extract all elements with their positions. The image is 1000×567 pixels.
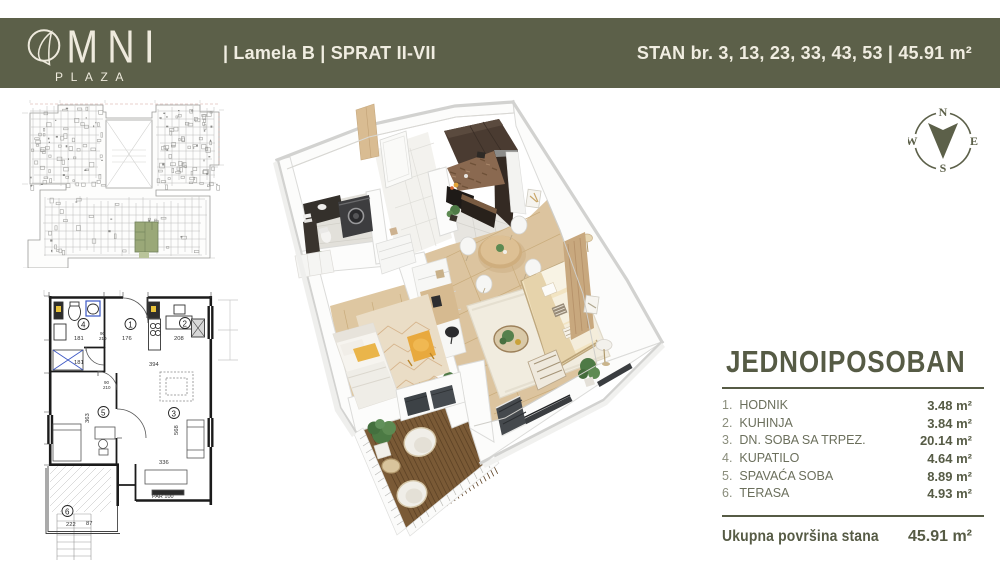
svg-text:1: 1 [128,320,133,329]
svg-text:87: 87 [86,521,92,527]
svg-text:6: 6 [65,507,70,516]
svg-text:5: 5 [101,408,106,417]
svg-text:N: N [939,106,948,119]
svg-text:176: 176 [122,336,132,342]
svg-text:363: 363 [85,413,91,423]
svg-text:208: 208 [174,336,184,342]
svg-text:181: 181 [74,360,84,366]
svg-text:210: 210 [99,336,107,341]
svg-text:3: 3 [172,409,177,418]
svg-text:181: 181 [74,336,84,342]
svg-text:PAR 100: PAR 100 [152,494,174,500]
svg-text:4: 4 [81,320,86,329]
svg-text:336: 336 [159,460,169,466]
svg-text:222: 222 [66,522,76,528]
svg-text:S: S [940,161,947,175]
svg-text:W: W [908,134,918,148]
svg-text:PLAZA: PLAZA [55,70,131,84]
svg-text:210: 210 [103,385,111,390]
svg-text:568: 568 [174,425,180,435]
svg-text:394: 394 [149,362,159,368]
svg-text:E: E [970,134,978,148]
svg-text:2: 2 [183,319,188,328]
